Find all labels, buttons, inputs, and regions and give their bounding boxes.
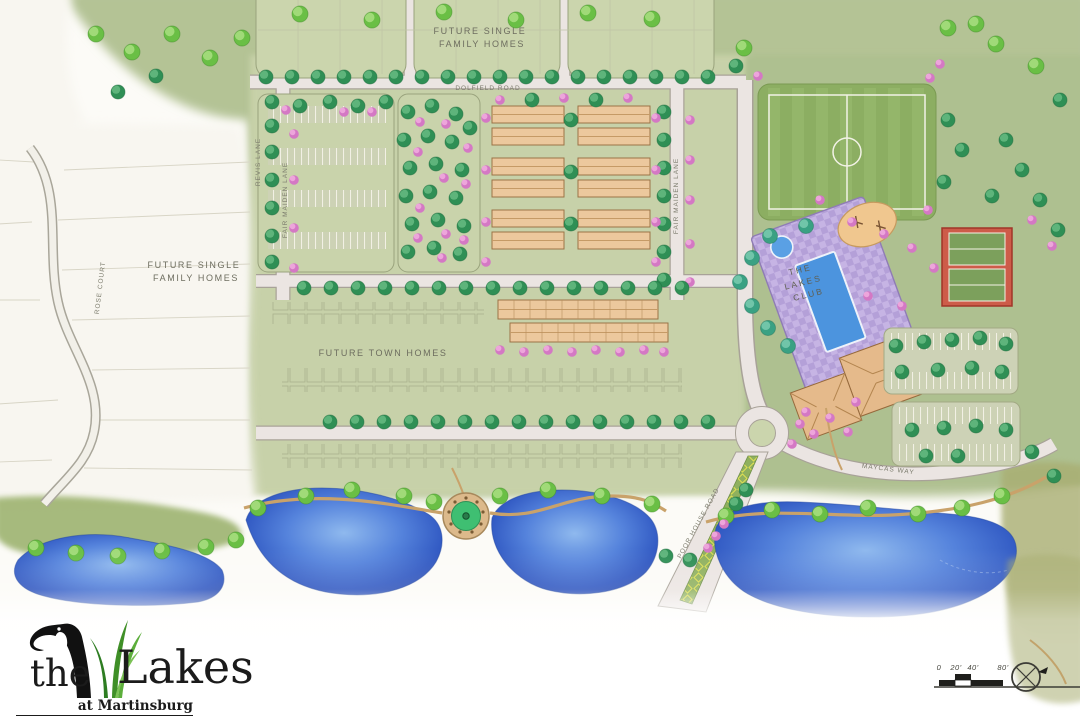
label-fair-maiden-lane-east: FAIR MAIDEN LANE (673, 158, 680, 234)
svg-text:80': 80' (997, 663, 1008, 672)
svg-text:40': 40' (967, 663, 978, 672)
street-trees-lower (323, 415, 715, 429)
svg-text:0: 0 (937, 663, 942, 672)
fountain-plaza (443, 493, 489, 539)
svg-text:20': 20' (949, 663, 961, 672)
label-fair-maiden-lane-west: FAIR MAIDEN LANE (282, 162, 289, 238)
sports-field (758, 84, 936, 220)
label-revis-lane: REVIS LANE (255, 138, 262, 186)
future-single-family-blocks: FUTURE SINGLE FAMILY HOMES (256, 0, 714, 78)
tennis-courts (942, 228, 1012, 306)
logo-subtitle: at Martinsburg (16, 698, 193, 716)
label-dolfield-road: DOLFIELD ROAD (455, 85, 520, 92)
logo-the: the (30, 652, 91, 695)
label-future-town-homes: FUTURE TOWN HOMES (319, 348, 448, 358)
site-plan-rendering: FUTURE SINGLE FAMILY HOMES ROSE COURT (0, 0, 1080, 720)
logo-lakes: Lakes (117, 640, 254, 694)
street-trees-mid (297, 281, 689, 295)
project-logo: the Lakes at Martinsburg Berkeley County… (16, 602, 246, 716)
